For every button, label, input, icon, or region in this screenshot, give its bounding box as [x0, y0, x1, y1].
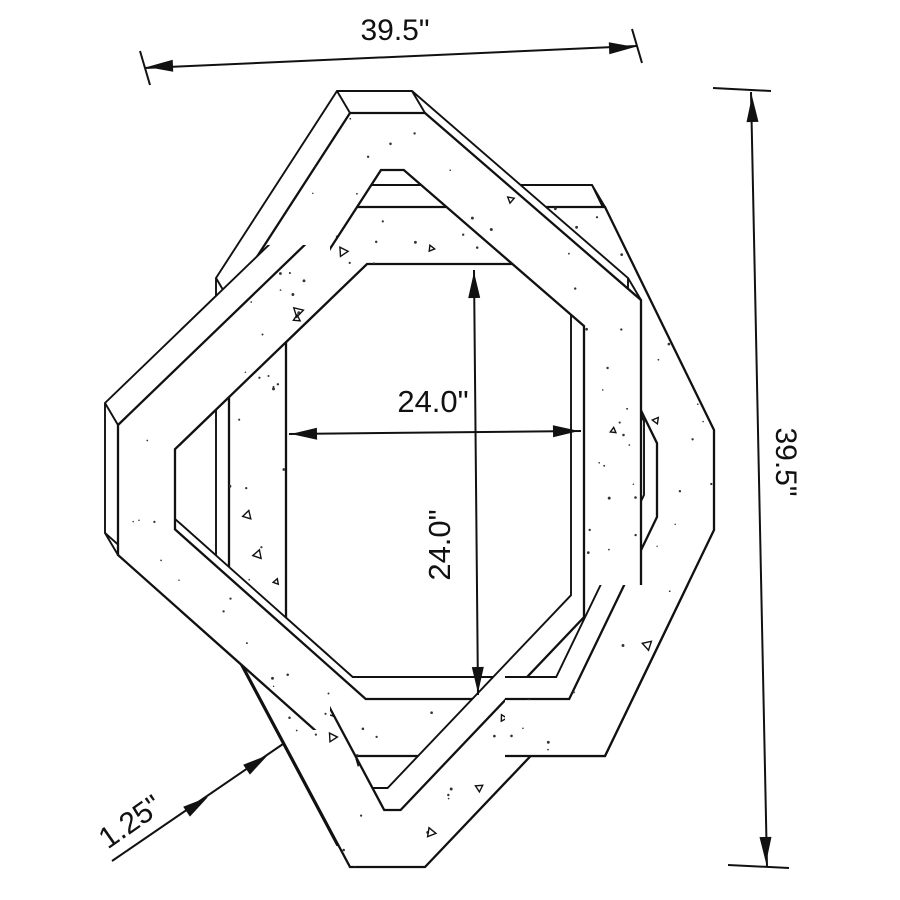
- opening-width-label: 24.0": [397, 384, 468, 419]
- dimension-arrowhead: [760, 837, 772, 863]
- overall-height-dimension: 39.5": [713, 88, 802, 868]
- dimension-arrowhead: [747, 96, 759, 122]
- opening-width-dimension: 24.0": [289, 384, 581, 434]
- thickness-label: 1.25": [93, 789, 168, 856]
- overall-height-label: 39.5": [769, 427, 802, 496]
- dimension-arrowhead: [609, 42, 635, 54]
- overall-width-dimension: 39.5": [140, 14, 642, 85]
- opening-height-dimension: 24.0": [422, 270, 478, 695]
- dimension-arrowhead: [468, 272, 480, 298]
- interlocking-frame-figure: [105, 91, 714, 867]
- dimension-arrowhead: [243, 755, 268, 775]
- dimension-arrowhead: [147, 60, 173, 72]
- technical-drawing: 39.5" 39.5" 24.0" 24.0" 1.25": [0, 0, 900, 900]
- dimension-arrowhead: [291, 428, 317, 440]
- drawing-canvas: 39.5" 39.5" 24.0" 24.0" 1.25": [0, 0, 900, 900]
- dimension-arrowhead: [183, 797, 208, 817]
- opening-height-label: 24.0": [422, 509, 457, 580]
- overall-width-label: 39.5": [360, 14, 429, 47]
